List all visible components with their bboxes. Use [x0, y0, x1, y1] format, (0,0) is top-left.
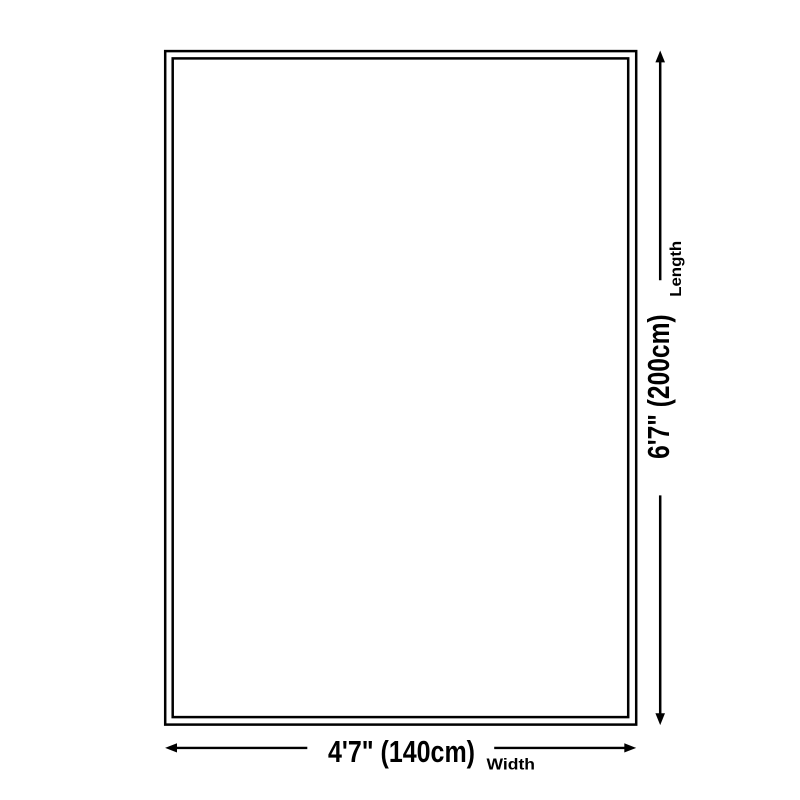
svg-text:Length: Length — [668, 241, 685, 297]
svg-text:4'7" (140cm): 4'7" (140cm) — [328, 734, 475, 769]
svg-text:6'7" (200cm): 6'7" (200cm) — [641, 314, 676, 459]
svg-text:Width: Width — [487, 757, 536, 774]
